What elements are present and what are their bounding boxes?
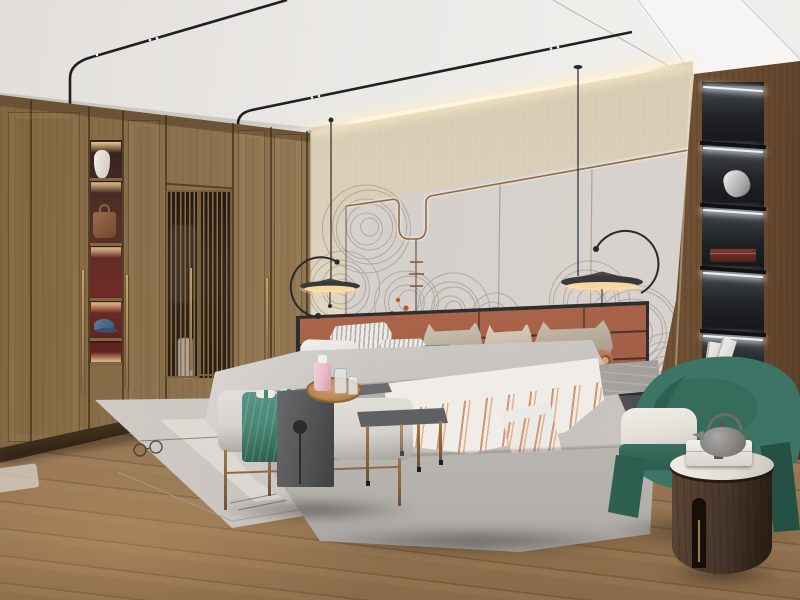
teapot-knob: [719, 421, 725, 427]
teapot: [700, 427, 746, 457]
teapot-handle: [0, 0, 800, 600]
bedroom-photo: [0, 0, 800, 600]
